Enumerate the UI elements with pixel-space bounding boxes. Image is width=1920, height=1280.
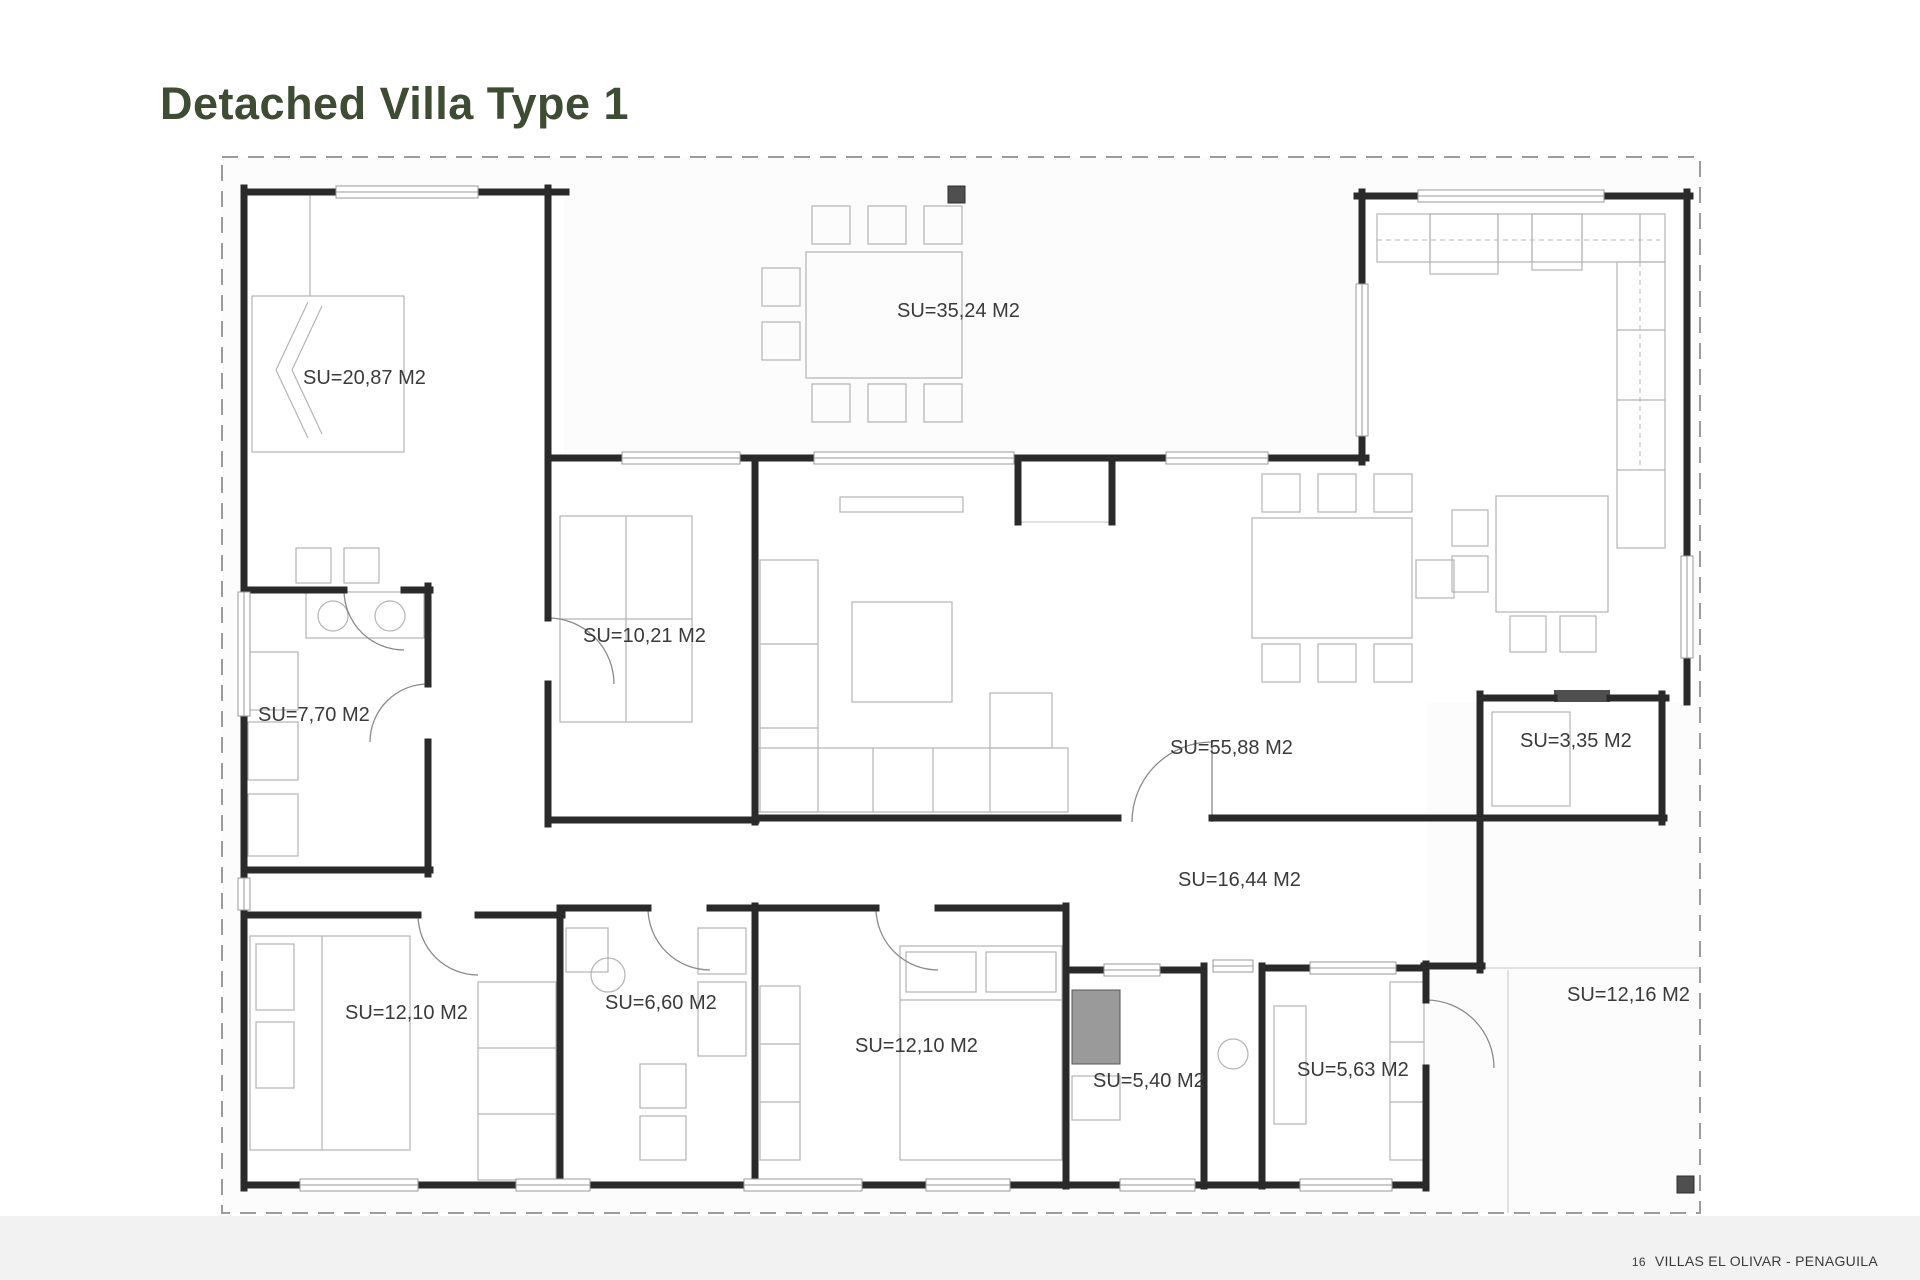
room-label-hallway: SU=16,44 M2 bbox=[1178, 869, 1301, 892]
room-label-dressing: SU=10,21 M2 bbox=[583, 625, 706, 648]
room-label-rear-porch: SU=12,16 M2 bbox=[1567, 984, 1690, 1007]
room-label-bedroom-1: SU=20,87 M2 bbox=[303, 367, 426, 390]
room-label-bathroom-3: SU=5,40 M2 bbox=[1093, 1070, 1205, 1093]
floor-plan: SU=20,87 M2 SU=35,24 M2 SU=10,21 M2 SU=7… bbox=[0, 0, 1920, 1280]
room-label-storage: SU=3,35 M2 bbox=[1520, 730, 1632, 753]
footer-page-number: 16 bbox=[1632, 1255, 1646, 1269]
room-label-living-room: SU=55,88 M2 bbox=[1170, 737, 1293, 760]
room-label-front-terrace: SU=35,24 M2 bbox=[897, 300, 1020, 323]
footer-project-name: VILLAS EL OLIVAR - PENAGUILA bbox=[1655, 1253, 1878, 1269]
room-label-bathroom-1: SU=7,70 M2 bbox=[258, 704, 370, 727]
page: Detached Villa Type 1 bbox=[0, 0, 1920, 1280]
footer: 16VILLAS EL OLIVAR - PENAGUILA bbox=[1632, 1253, 1878, 1269]
room-label-bedroom-2: SU=12,10 M2 bbox=[345, 1002, 468, 1025]
bottom-band bbox=[0, 1216, 1920, 1280]
floor-plan-drawing bbox=[0, 0, 1920, 1280]
room-label-laundry: SU=5,63 M2 bbox=[1297, 1059, 1409, 1082]
room-label-bedroom-3: SU=12,10 M2 bbox=[855, 1035, 978, 1058]
room-label-bathroom-2: SU=6,60 M2 bbox=[605, 992, 717, 1015]
